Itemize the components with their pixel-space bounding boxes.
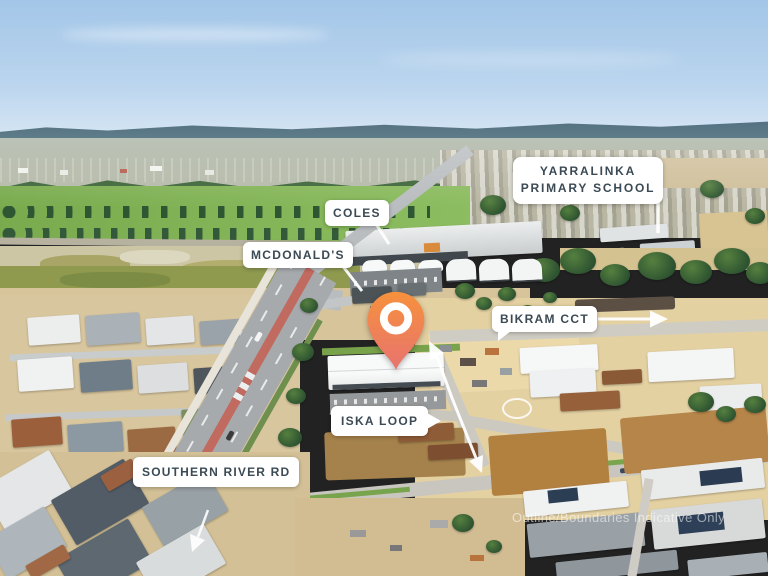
tree [300,298,318,313]
tree [680,260,712,284]
tree [480,195,506,215]
label-tail-down-icon [498,331,511,341]
label-coles: COLES [325,200,389,226]
construction-clutter [390,545,402,551]
disclaimer-text: Outline/Boundaries Indicative Only [512,510,725,525]
tree [560,248,596,274]
timber-frame-structure [560,390,621,411]
label-bikram-cct: BIKRAM CCT [492,306,597,332]
tree [716,406,736,422]
tree [700,180,724,198]
tree [452,514,474,532]
loading-dock [424,243,440,253]
tree [278,428,302,447]
tree [600,264,630,286]
construction-clutter [440,345,452,352]
cloud [60,28,330,41]
tree [714,248,750,274]
vacant-lot [295,498,525,576]
distant-building [150,166,162,171]
warehouse-roof [647,348,734,382]
label-bikram-text: BIKRAM CCT [500,312,589,326]
carpark-canopy [445,258,476,283]
tree [543,292,557,303]
brick-house-frame [11,416,63,447]
aerial-map: YARRALINKA PRIMARY SCHOOL COLES MCDONALD… [0,0,768,576]
tree [744,396,766,413]
house-roof [145,315,195,345]
timber-frame-structure [602,369,643,385]
tree [560,205,580,221]
label-yarralinka-primary-school: YARRALINKA PRIMARY SCHOOL [513,157,663,204]
house-roof [85,312,141,346]
scrub-patch [60,272,170,288]
location-pin-icon [364,289,428,375]
disclaimer-watermark: Outline/Boundaries Indicative Only [512,510,725,525]
label-southern-river-rd: SOUTHERN RIVER RD [133,457,299,487]
house-roof [137,362,189,393]
cloud [380,54,680,65]
construction-clutter [460,358,476,366]
label-school-line1: YARRALINKA [540,164,636,178]
arrow-right-icon [427,413,441,429]
ground-marking [502,398,532,419]
tree [638,252,676,280]
label-southern-text: SOUTHERN RIVER RD [142,465,290,479]
construction-clutter [430,520,448,528]
tree [476,297,492,310]
construction-clutter [485,348,499,355]
distant-building [18,168,28,173]
timber-frame-structure [428,443,479,461]
tree [745,208,765,224]
tree [292,343,314,361]
sand-patch [120,250,190,264]
median-marking [231,371,256,405]
tree [486,540,502,553]
aerial-photo [0,0,768,576]
house-roof [67,421,124,455]
distant-building [205,170,214,175]
carpark-canopy [511,258,542,283]
label-mcdonalds-text: MCDONALD'S [251,248,345,262]
construction-clutter [350,530,366,537]
house-roof [27,314,81,346]
house-roof [79,359,133,393]
label-coles-text: COLES [333,206,381,220]
carpark-canopy [478,258,509,283]
construction-clutter [470,555,484,561]
label-iska-text: ISKA LOOP [341,414,418,428]
distant-building [120,169,127,173]
tree [746,262,768,284]
label-mcdonalds: MCDONALD'S [243,242,353,268]
tree [286,388,306,404]
construction-clutter [500,368,512,375]
tree [455,283,475,299]
label-iska-loop: ISKA LOOP [331,406,428,436]
tree [498,287,516,301]
parked-cars [334,396,440,405]
house-roof [687,552,768,576]
house-roof [17,356,74,392]
label-school-line2: PRIMARY SCHOOL [521,181,656,195]
distant-building [60,170,68,175]
house-roof [555,550,678,576]
tree [688,392,714,412]
construction-clutter [472,380,487,387]
